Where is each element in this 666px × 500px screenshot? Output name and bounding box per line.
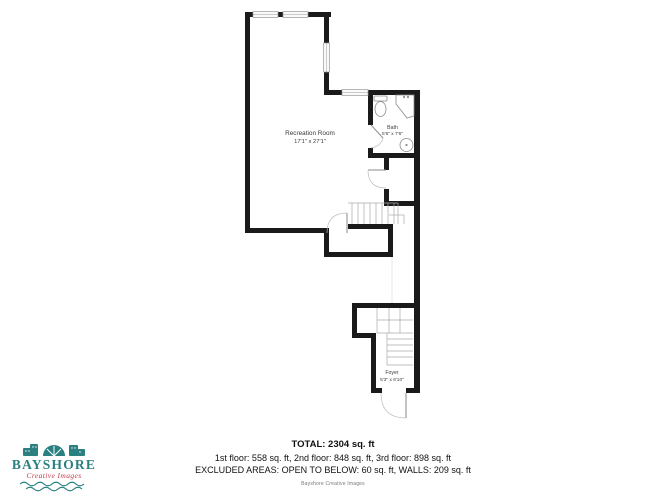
- total-area-text: TOTAL: 2304 sq. ft: [0, 439, 666, 452]
- room-label-recreation: Recreation Room: [285, 130, 335, 137]
- door-swing-arc: [371, 138, 383, 148]
- wall: [352, 303, 420, 308]
- room-dimensions-foyer: 5'3" x 6'10": [380, 377, 404, 383]
- wall: [384, 158, 389, 170]
- logo-name: BAYSHORE: [10, 458, 98, 471]
- room-label-bath: Bath: [387, 125, 398, 131]
- window-icon: [324, 43, 330, 72]
- toilet-icon: [374, 96, 387, 117]
- door-swing-arc: [368, 170, 386, 188]
- wall: [245, 228, 327, 233]
- room-label-foyer: Foyer: [385, 370, 399, 376]
- bayshore-logo: BAYSHORE Creative Images: [10, 439, 98, 493]
- walls: [245, 12, 420, 393]
- waves-icon: [18, 480, 90, 493]
- wall: [324, 252, 393, 257]
- excluded-areas-text: EXCLUDED AREAS: OPEN TO BELOW: 60 sq. ft…: [0, 464, 666, 476]
- window-icon: [253, 12, 278, 18]
- wall: [388, 229, 393, 257]
- floor-plan: Recreation Room 17'1" x 27'1" Bath 5'6" …: [240, 5, 430, 435]
- door-closet: [368, 170, 386, 188]
- windows: [253, 12, 368, 96]
- door-recreation: [327, 213, 347, 233]
- stairs-middle: [348, 203, 404, 224]
- door-swing-arc: [327, 213, 347, 233]
- room-dimensions-bath: 5'6" x 7'6": [382, 131, 403, 137]
- wall: [371, 333, 376, 393]
- door-swing-arc: [381, 393, 406, 418]
- wall: [371, 388, 382, 393]
- wall: [245, 12, 250, 233]
- room-dimensions-recreation: 17'1" x 27'1": [294, 139, 326, 145]
- bayshore-skyline-icon: [16, 439, 92, 458]
- area-summary: TOTAL: 2304 sq. ft 1st floor: 558 sq. ft…: [0, 439, 666, 476]
- sink-icon: [400, 139, 413, 152]
- wall: [352, 303, 357, 338]
- shower-icon: [396, 95, 414, 118]
- door-entry: [381, 393, 406, 418]
- wall: [384, 201, 420, 206]
- footer-credit: Bayshore Creative Images: [0, 481, 666, 487]
- stairs-foyer: [377, 308, 413, 365]
- wall: [406, 388, 420, 393]
- wall: [348, 224, 393, 229]
- floorplan-page: Recreation Room 17'1" x 27'1" Bath 5'6" …: [0, 0, 666, 500]
- wall: [368, 153, 420, 158]
- wall: [368, 93, 373, 125]
- floor-areas-text: 1st floor: 558 sq. ft, 2nd floor: 848 sq…: [0, 452, 666, 464]
- window-icon: [342, 90, 368, 96]
- wall: [414, 90, 420, 393]
- window-icon: [283, 12, 308, 18]
- logo-tagline: Creative Images: [10, 472, 98, 480]
